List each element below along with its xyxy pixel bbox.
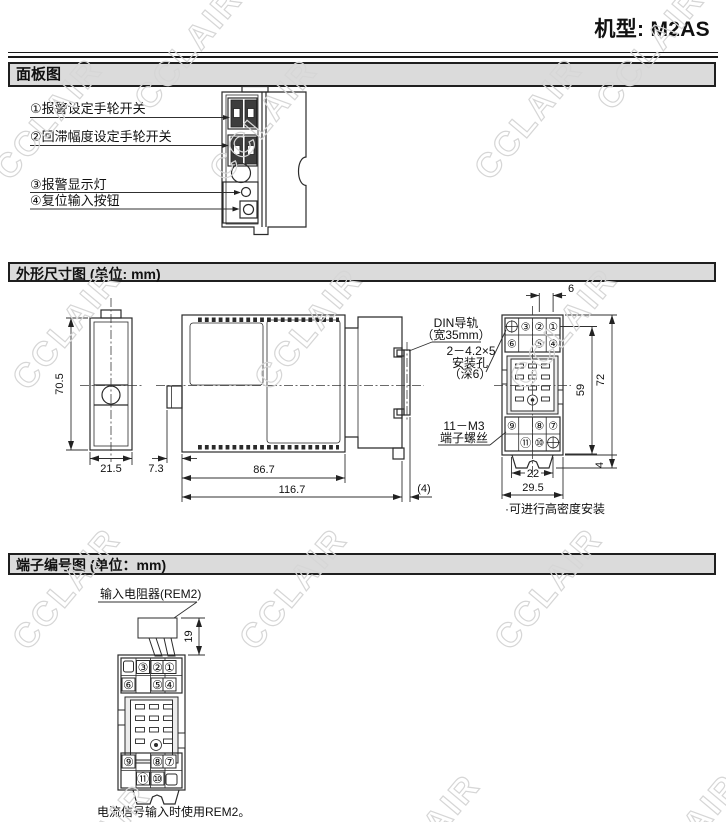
terminal-3: ③	[138, 660, 149, 674]
terminal-1: ①	[548, 322, 558, 334]
callout-reset-button: ④复位输入按钮	[30, 193, 120, 208]
terminal-6: ⑥	[123, 678, 134, 692]
label-mounting-hole-3: （深6）	[449, 367, 492, 381]
terminal-8: ⑧	[534, 421, 544, 433]
callout-alarm-thumbwheel: ①报警设定手轮开关	[30, 101, 146, 116]
dim-socket-inner-height: 59	[575, 384, 587, 396]
section-header-dimensions: 外形尺寸图 (单位: mm)	[8, 262, 716, 282]
dim-socket-tab: 4	[594, 462, 606, 468]
terminal-9: ⑨	[507, 421, 517, 433]
din-rail-drawing	[397, 342, 410, 422]
resistor-dimension: 19	[181, 618, 205, 655]
section-title-dimensions: 外形尺寸图 (单位: mm)	[16, 266, 161, 282]
terminal-6: ⑥	[507, 339, 517, 351]
reset-button-drawing	[240, 201, 257, 218]
side-view-dimensions: 7.3 86.7 116.7 (4)	[148, 410, 432, 502]
terminal-socket-drawing: ③ ② ① ⑥ ⑤ ④	[118, 655, 185, 804]
terminal-7: ⑦	[548, 421, 558, 433]
panel-module-drawing	[222, 87, 306, 235]
note-current-input: 电流信号输入时使用REM2。	[97, 804, 250, 819]
dim-pitch: 6	[568, 283, 574, 295]
dim-rail-gap: (4)	[417, 483, 430, 495]
header-rule	[8, 52, 718, 58]
terminals-figure: 输入电阻器(REM2) 19 ③ ② ①	[0, 585, 726, 822]
arrow-icon	[223, 115, 230, 120]
terminal-4: ④	[548, 339, 558, 351]
arrow-icon	[233, 207, 240, 212]
terminal-5: ⑤	[534, 339, 544, 351]
terminal-4: ④	[164, 678, 175, 692]
callout-alarm-led: ③报警显示灯	[30, 177, 107, 192]
section-title-panel: 面板图	[16, 66, 61, 83]
dim-socket-total-height: 72	[595, 374, 607, 386]
mounting-hole-bottom-icon	[547, 436, 560, 449]
terminal-11: ⑪	[137, 772, 149, 786]
section-header-panel: 面板图	[8, 62, 716, 87]
dim-front-width: 21.5	[100, 463, 121, 475]
socket-view-labels: DIN导轨 （宽35mm） 2－4.2×5 安装孔 （深6） 11－M3 端子螺…	[409, 316, 506, 445]
front-view-drawing	[80, 298, 142, 462]
label-input-resistor: 输入电阻器(REM2)	[100, 586, 201, 601]
terminal-3: ③	[521, 322, 531, 334]
terminal-10: ⑩	[534, 438, 544, 450]
terminal-10: ⑩	[152, 772, 163, 786]
datasheet-page: 机型: M2AS 面板图 ①报警设定手轮开关 ②回滞幅度设定手轮开关 ③报警显示…	[0, 0, 726, 822]
mounting-hole-top-icon	[506, 320, 519, 333]
terminal-8: ⑧	[152, 755, 163, 769]
input-resistor-drawing	[138, 618, 177, 656]
terminal-9: ⑨	[123, 755, 134, 769]
section-header-terminals: 端子编号图 (单位：mm)	[8, 553, 716, 575]
note-high-density: ·可进行高密度安装	[505, 501, 605, 516]
terminal-2: ②	[152, 660, 163, 674]
callout-hysteresis-thumbwheel: ②回滞幅度设定手轮开关	[30, 129, 172, 144]
panel-callouts: ①报警设定手轮开关 ②回滞幅度设定手轮开关 ③报警显示灯 ④复位输入按钮	[30, 101, 241, 212]
terminal-2: ②	[534, 322, 544, 334]
alarm-led-drawing	[242, 188, 251, 197]
dim-socket-inner-width: 22	[527, 468, 539, 480]
dim-resistor-height: 19	[183, 630, 195, 642]
terminal-7: ⑦	[164, 755, 175, 769]
page-title-model: 机型: M2AS	[594, 13, 710, 43]
section-title-terminals: 端子编号图 (单位：mm)	[16, 557, 166, 573]
dimensions-figure: 70.5 21.5	[0, 282, 726, 522]
dim-socket-total-width: 29.5	[522, 482, 543, 494]
arrow-icon	[234, 190, 241, 195]
label-din-rail-2: （宽35mm）	[421, 327, 490, 342]
dim-side-total: 116.7	[279, 484, 306, 496]
panel-figure: ①报警设定手轮开关 ②回滞幅度设定手轮开关 ③报警显示灯 ④复位输入按钮	[0, 85, 726, 250]
terminal-11: ⑪	[520, 437, 531, 450]
dim-side-body: 86.7	[253, 464, 274, 476]
side-view-drawing	[156, 315, 424, 459]
dim-side-offset: 7.3	[148, 463, 163, 475]
terminal-1: ①	[164, 660, 175, 674]
terminal-5: ⑤	[152, 678, 163, 692]
label-terminal-screw-2: 端子螺丝	[440, 431, 488, 445]
dim-front-height: 70.5	[54, 373, 66, 394]
